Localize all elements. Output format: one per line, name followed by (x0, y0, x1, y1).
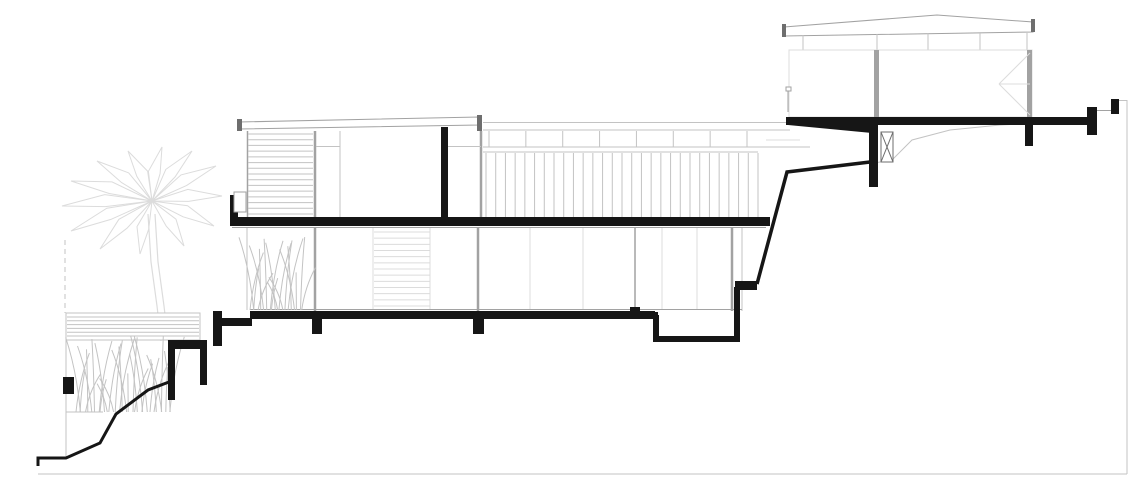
boundary-post (1111, 99, 1119, 114)
pavilion-slab-wedge (788, 125, 872, 133)
terrain-profile-line (757, 162, 870, 284)
pavilion-pier (1025, 125, 1033, 146)
retaining-wall-leg (200, 349, 207, 385)
upper-floor-slab (230, 217, 770, 226)
section-drawing (0, 0, 1146, 498)
pavilion-body-outline (789, 50, 1032, 117)
palm-crown (62, 147, 222, 254)
natural-grade-line (874, 120, 1088, 163)
garden-wall (63, 377, 74, 394)
grass-blade (264, 239, 267, 310)
pavilion-roof-cap-left (782, 24, 786, 37)
main-roof-cap-left (237, 119, 242, 131)
32 (66, 336, 185, 412)
main-roof-cap-right (477, 115, 482, 131)
slab-footing (473, 319, 484, 334)
retaining-wall-top (168, 340, 207, 349)
slab-step-nub (630, 307, 640, 312)
rail-post-marker (786, 87, 791, 91)
door-swing-line (999, 53, 1030, 84)
architectural-section-sheet (0, 0, 1146, 498)
door-swing-line (999, 84, 1030, 115)
pavilion-pier (869, 125, 878, 187)
pavilion-roof (784, 15, 1033, 36)
parapet-planter (234, 192, 246, 212)
grass-blade (302, 268, 316, 310)
step-wall (213, 311, 222, 346)
pavilion-post (874, 50, 879, 117)
step-slab (222, 318, 252, 326)
pavilion-roof-cap-right (1031, 19, 1035, 32)
grass-blade (92, 339, 95, 412)
retaining-wall-leg (168, 349, 175, 400)
pavilion-floor-slab (786, 117, 1092, 125)
groundfloor-slab (250, 311, 655, 319)
20 (239, 237, 315, 310)
slab-footing (312, 319, 322, 334)
terrace-parapet (1087, 107, 1097, 135)
trough-cap (735, 281, 757, 290)
section-wall (441, 127, 448, 219)
